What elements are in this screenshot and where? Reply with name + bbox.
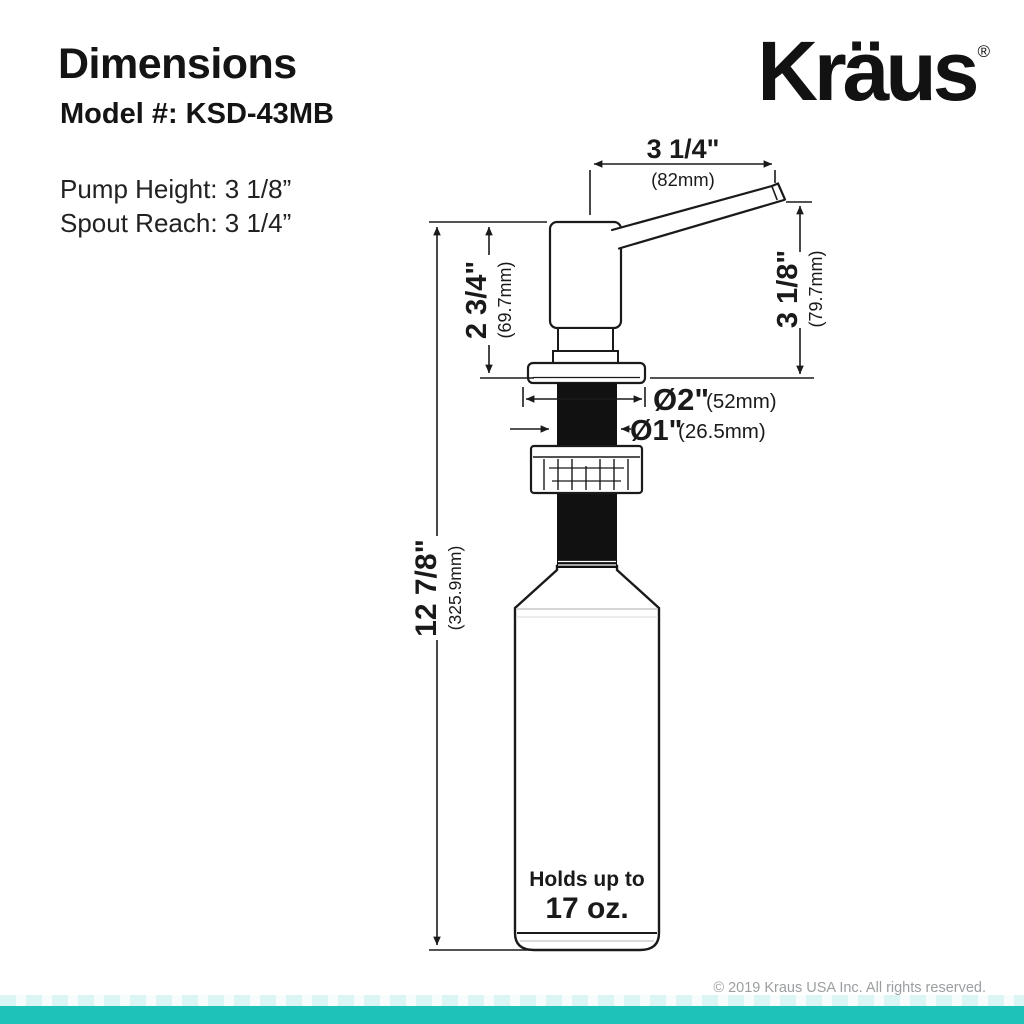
dim-shaft-diameter-mm: (26.5mm) bbox=[678, 420, 766, 443]
dim-shaft-diameter-inches: Ø1" bbox=[630, 415, 682, 447]
registered-trademark-icon: ® bbox=[977, 42, 990, 62]
spec-spout-reach: Spout Reach: 3 1/4” bbox=[60, 206, 291, 240]
dispenser-diagram: 3 1/4" (82mm) 2 3/4" (69.7mm) 3 1/8" (79… bbox=[380, 128, 840, 980]
spout bbox=[612, 183, 785, 249]
dispenser-diagram-svg: 3 1/4" (82mm) 2 3/4" (69.7mm) 3 1/8" (79… bbox=[380, 128, 840, 980]
base-flange bbox=[528, 363, 645, 383]
pump-head bbox=[550, 222, 621, 328]
bottle-capacity-line1: Holds up to bbox=[529, 868, 644, 891]
dim-flange-diameter-mm: (52mm) bbox=[706, 390, 777, 413]
dim-spout-height-inches: 3 1/8" bbox=[772, 250, 804, 328]
accent-bar bbox=[0, 1006, 1024, 1024]
dim-spout-reach-mm: (82mm) bbox=[651, 169, 715, 190]
threaded-shaft-lower bbox=[557, 493, 617, 568]
threaded-shaft-upper bbox=[557, 383, 617, 450]
bottle-capacity-line2: 17 oz. bbox=[545, 892, 628, 925]
spec-pump-height: Pump Height: 3 1/8” bbox=[60, 172, 291, 206]
dim-total-height-inches: 12 7/8" bbox=[410, 539, 443, 637]
page-title: Dimensions bbox=[58, 40, 297, 89]
dim-spout-reach-inches: 3 1/4" bbox=[647, 134, 720, 164]
pump-neck bbox=[553, 328, 618, 363]
dim-total-height-mm: (325.9mm) bbox=[445, 546, 465, 631]
dim-flange-diameter-inches: Ø2" bbox=[653, 382, 709, 417]
kraus-logo-text: Kräus bbox=[757, 26, 975, 116]
spec-block: Pump Height: 3 1/8” Spout Reach: 3 1/4” bbox=[60, 172, 291, 240]
model-number: Model #: KSD-43MB bbox=[60, 98, 334, 131]
dim-pump-height-mm: (69.7mm) bbox=[495, 261, 515, 338]
watermark-strip bbox=[0, 995, 1024, 1006]
dim-pump-height-inches: 2 3/4" bbox=[461, 261, 493, 339]
dim-spout-height-mm: (79.7mm) bbox=[806, 250, 826, 327]
kraus-logo: Kräus ® bbox=[757, 26, 990, 116]
copyright-text: © 2019 Kraus USA Inc. All rights reserve… bbox=[713, 980, 986, 996]
mounting-nut bbox=[531, 446, 642, 493]
